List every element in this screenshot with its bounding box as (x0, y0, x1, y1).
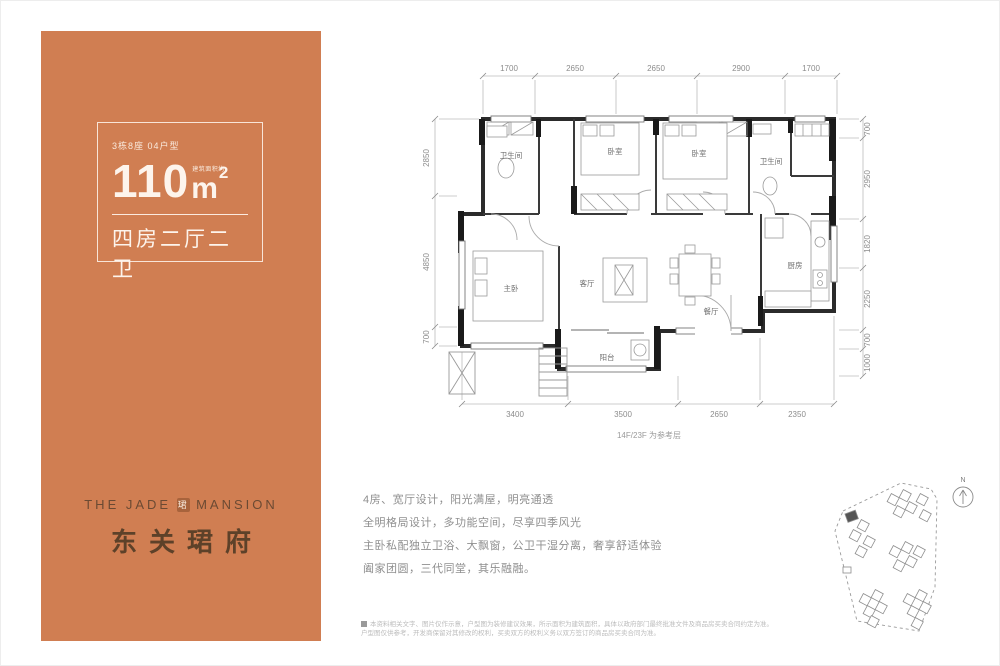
room-label: 主卧 (504, 283, 519, 293)
floorplan-svg: 1700 2650 2650 2900 1700 3400 3500 2650 … (391, 46, 911, 466)
building-footprints (843, 490, 931, 630)
area-row: 110 建筑面积约 m2 (112, 158, 250, 204)
fridge-icon (765, 218, 783, 238)
brand-block: THE JADE 珺 MANSION 东关珺府 (41, 497, 321, 559)
room-label: 卧室 (692, 148, 707, 158)
wardrobe-icon (581, 194, 639, 210)
spec-box: 3栋8座 04户型 110 建筑面积约 m2 四房二厅二卫 (97, 122, 263, 262)
dimension-label: 2250 (863, 290, 872, 308)
room-label: 卫生间 (760, 156, 783, 166)
orange-panel: 3栋8座 04户型 110 建筑面积约 m2 四房二厅二卫 THE JADE 珺… (41, 31, 321, 641)
dimension-label: 3500 (614, 410, 632, 419)
dimension-label: 2850 (422, 149, 431, 167)
dimension-label: 1700 (802, 64, 820, 73)
reference-floor-note: 14F/23F 为参考层 (617, 430, 681, 440)
stair-shaft-icon (449, 348, 567, 396)
dimension-label: 1700 (500, 64, 518, 73)
dimension-label: 4850 (422, 253, 431, 271)
area-value: 110 (112, 158, 189, 204)
dimension-label: 700 (422, 330, 431, 344)
room-label: 阳台 (600, 352, 615, 362)
dimension-label: 2650 (647, 64, 665, 73)
description-line: 全明格局设计，多功能空间，尽享四季风光 (363, 512, 663, 535)
brochure-page: 3栋8座 04户型 110 建筑面积约 m2 四房二厅二卫 THE JADE 珺… (0, 0, 1000, 666)
north-label: N (960, 477, 965, 484)
brand-cn: 东关珺府 (41, 522, 321, 559)
sink-icon (753, 124, 771, 134)
room-label: 厨房 (788, 260, 803, 270)
compass-icon: N (953, 477, 973, 507)
sitemap-svg: N (823, 469, 983, 659)
floorplan: 1700 2650 2650 2900 1700 3400 3500 2650 … (391, 46, 911, 466)
sitemap: N (823, 469, 983, 659)
dimension-label: 700 (863, 333, 872, 347)
sliding-door (569, 327, 646, 335)
highlighted-building (845, 510, 858, 522)
toilet-icon (498, 158, 514, 178)
area-unit-wrap: 建筑面积约 m2 (191, 174, 227, 204)
brand-en: THE JADE 珺 MANSION (41, 497, 321, 512)
dimension-label: 3400 (506, 410, 524, 419)
dimension-label: 1820 (863, 235, 872, 253)
dimension-label: 2900 (732, 64, 750, 73)
description-line: 主卧私配独立卫浴、大飘窗，公卫干湿分离，奢享舒适体验 (363, 535, 663, 558)
description-block: 4房、宽厅设计，阳光满屋，明亮通透 全明格局设计，多功能空间，尽享四季风光 主卧… (363, 489, 663, 581)
description-line: 4房、宽厅设计，阳光满屋，明亮通透 (363, 489, 663, 512)
area-unit: m (191, 172, 218, 205)
toilet-icon (763, 177, 777, 195)
room-label: 卧室 (608, 146, 623, 156)
dimension-label: 2650 (710, 410, 728, 419)
brand-en-left: THE JADE (84, 497, 171, 512)
dimension-label: 2650 (566, 64, 584, 73)
dimension-label: 1000 (863, 354, 872, 372)
layout-label: 四房二厅二卫 (112, 223, 250, 283)
kitchen-counter (765, 291, 811, 307)
kitchen-counter (811, 221, 829, 301)
description-line: 阖家团圆，三代同堂，其乐融融。 (363, 558, 663, 581)
spec-divider (112, 214, 248, 215)
dimension-label: 700 (863, 122, 872, 136)
sink-icon (487, 126, 507, 137)
room-label: 卫生间 (500, 150, 523, 160)
brand-en-right: MANSION (196, 497, 278, 512)
brand-logo-icon: 珺 (177, 498, 190, 512)
dining-table-icon (679, 254, 711, 296)
room-label: 客厅 (580, 278, 595, 288)
note-square-icon (361, 621, 367, 627)
dimension-label: 2950 (863, 170, 872, 188)
area-superscript: 2 (219, 163, 228, 182)
room-label: 餐厅 (704, 307, 719, 316)
kitchen-sink-icon (815, 237, 825, 247)
dimension-label: 2350 (788, 410, 806, 419)
unit-label: 3栋8座 04户型 (112, 139, 250, 152)
